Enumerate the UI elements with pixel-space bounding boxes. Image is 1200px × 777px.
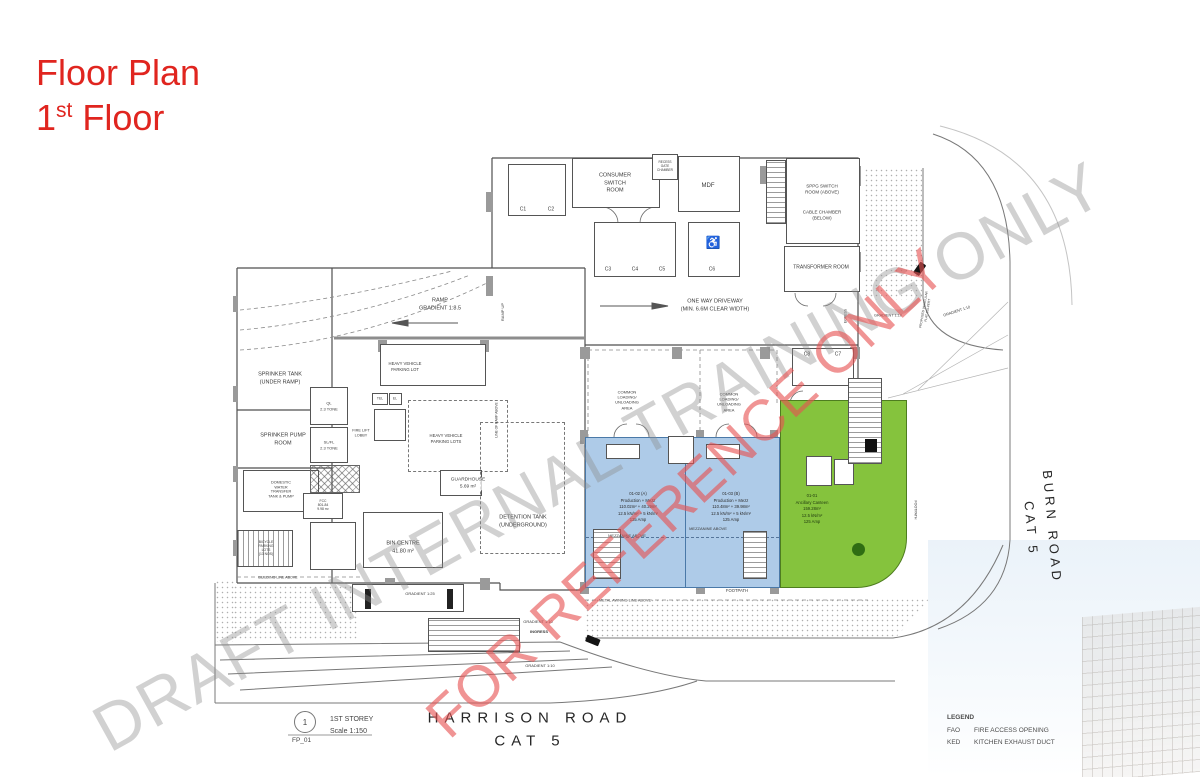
unit-a-stair [593, 529, 621, 579]
gradient-fan-lines [888, 302, 1008, 398]
floor-plan-page: CONSUMER SWITCH ROOM MDF RECESS GATE CHA… [0, 0, 1200, 777]
bicycle-parking-box [237, 530, 293, 567]
meter-chamber-box [652, 154, 678, 180]
page-title-line2: 1st Floor [36, 95, 200, 140]
parking-c1-c2-box [508, 164, 566, 216]
sheet-storey: 1ST STOREY [330, 716, 373, 723]
parking-c3-c5-box [594, 222, 676, 277]
guardhouse-box [440, 470, 482, 496]
outer-road-arc [940, 126, 1072, 305]
bin-centre-room [363, 512, 443, 568]
sheet-scale: Scale 1:150 [330, 728, 367, 735]
east-stair-block [848, 378, 882, 464]
lift-slfl-box [310, 427, 348, 463]
transformer-room [784, 246, 860, 292]
mdf-room [678, 156, 740, 212]
legend-fao-abbr: FAO [947, 727, 960, 734]
sheet-code: FP_01 [292, 737, 311, 744]
ked-circle [852, 543, 865, 556]
toilet-block [310, 522, 356, 570]
loading-dock [706, 444, 740, 459]
page-title: Floor Plan 1st Floor [36, 50, 200, 140]
unit-b-stair [743, 531, 767, 579]
detention-tank-outline [480, 422, 565, 554]
lift-ql-box [310, 387, 348, 425]
parking-c8-c7-box [792, 348, 854, 386]
el-riser-box [389, 393, 402, 405]
gradient-125-ramp [352, 584, 464, 612]
ramp-end-bar [447, 589, 453, 609]
services-shaft [668, 436, 694, 464]
canteen-toilet [806, 456, 832, 486]
harrison-road-label: HARRISON ROAD CAT 5 [428, 708, 633, 753]
tel-riser-box [372, 393, 388, 405]
wet-riser-hatch [310, 465, 360, 493]
fcc-room [303, 493, 343, 519]
page-title-line1: Floor Plan [36, 50, 200, 95]
ramp-end-bar [365, 589, 371, 609]
ingress-ramp [428, 618, 520, 652]
legend-fao-desc: FIRE ACCESS OPENING [974, 727, 1049, 734]
sheet-number-bubble: 1 [294, 711, 316, 733]
consumer-switch-room [572, 158, 660, 208]
sppg-cable-chamber-room [786, 158, 860, 244]
loading-dock [606, 444, 640, 459]
heavy-vehicle-lot-top-box [380, 344, 486, 386]
sheet-number: 1 [303, 718, 307, 727]
legend-ked-abbr: KED [947, 739, 960, 746]
kitchen-exhaust-duct [865, 439, 877, 452]
canteen-unit-block [780, 400, 907, 588]
legend-title: LEGEND [947, 714, 974, 721]
unit-a-b-block [585, 437, 780, 588]
substation-stair [766, 160, 786, 224]
legend-ked-desc: KITCHEN EXHAUST DUCT [974, 739, 1055, 746]
fire-lift-box [374, 409, 406, 441]
parking-c6-accessible-box [688, 222, 740, 277]
